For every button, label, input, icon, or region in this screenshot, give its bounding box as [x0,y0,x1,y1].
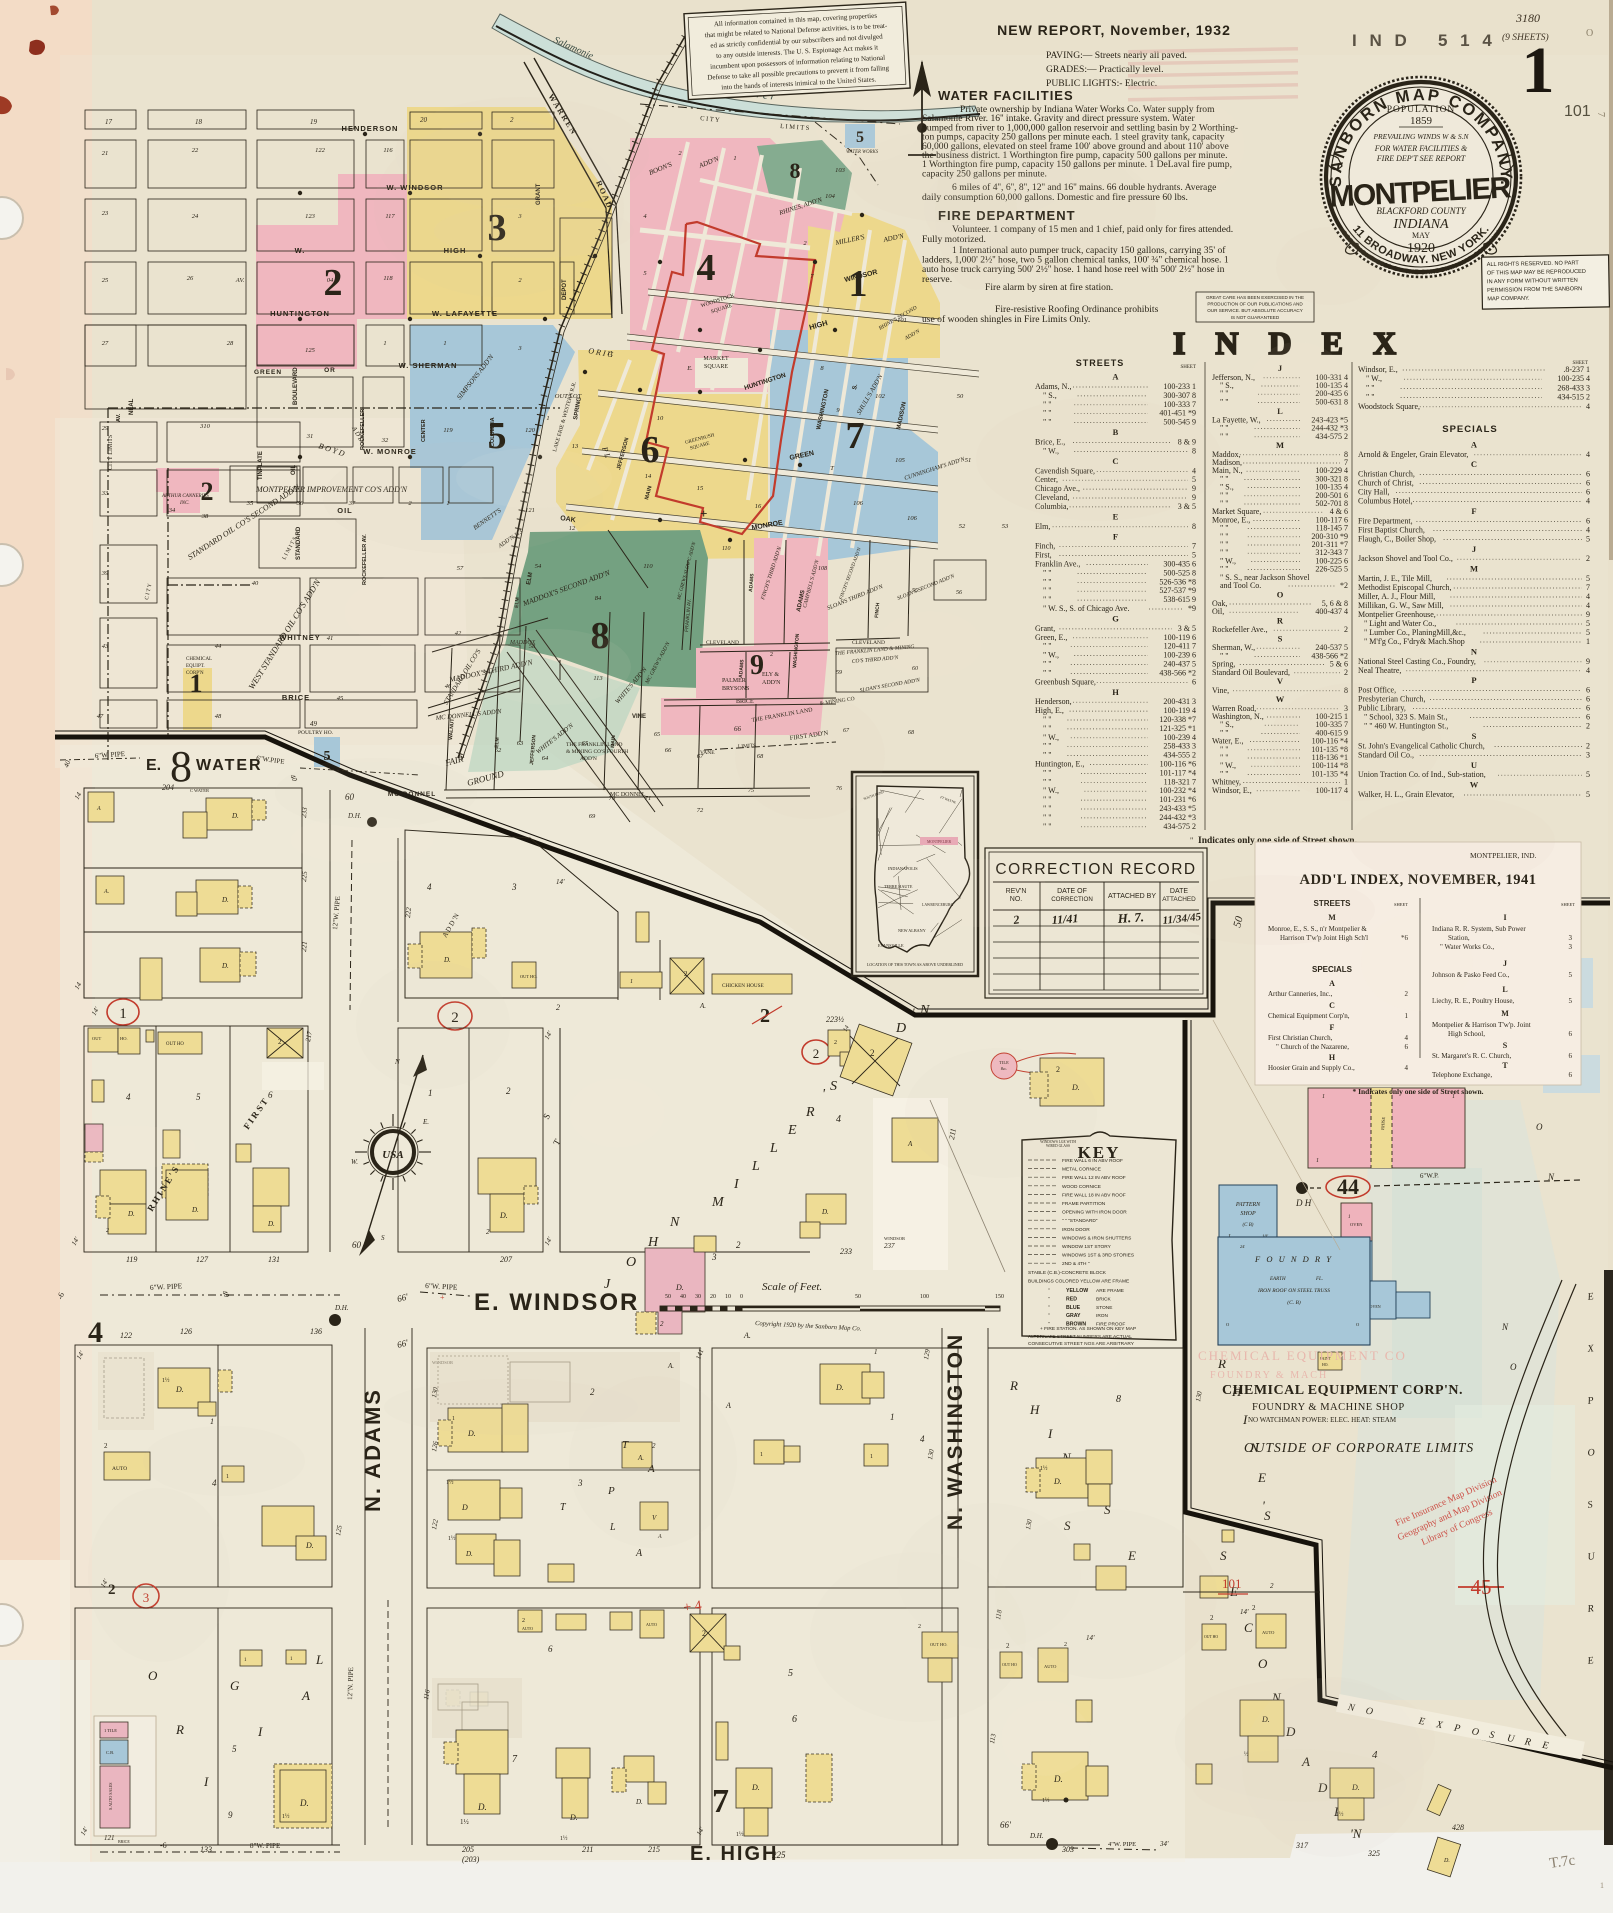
svg-text:2: 2 [201,477,214,506]
svg-text:1½: 1½ [460,1818,469,1826]
svg-text:120-338 *7: 120-338 *7 [1159,715,1196,724]
svg-text:" ": " " [1220,432,1229,441]
svg-text:1859: 1859 [1410,115,1433,127]
svg-text:E. HIGH: E. HIGH [690,1843,778,1865]
svg-text:57: 57 [457,565,464,572]
svg-text:AUTO: AUTO [646,1622,657,1627]
svg-text:1: 1 [849,263,868,305]
svg-text:2ND & 4TH ": 2ND & 4TH " [1062,1261,1090,1267]
svg-text:H: H [1029,1402,1040,1417]
svg-text:2: 2 [486,1228,490,1236]
svg-text:31: 31 [306,433,314,440]
svg-text:L: L [1502,985,1507,994]
svg-text:50: 50 [957,393,964,400]
svg-text:FOUNDRY & MACH: FOUNDRY & MACH [1210,1370,1328,1381]
svg-text:51: 51 [965,457,972,464]
svg-text:Huntington, E.,: Huntington, E., [1035,760,1084,769]
svg-text:118-321 7: 118-321 7 [1164,777,1196,786]
svg-text:First Christian Church,: First Christian Church, [1268,1034,1333,1042]
svg-text:1920: 1920 [1407,241,1435,256]
svg-text:ELM: ELM [494,737,501,748]
svg-text:ATTACHED BY: ATTACHED BY [1108,893,1156,900]
svg-text:" ": " " [1043,742,1052,751]
svg-text:" Lumber Co., PlaningMill,: " Lumber Co., PlaningMill,&c., [1364,628,1466,637]
svg-text:AV.: AV. [116,413,122,422]
svg-text:538-615 9: 538-615 9 [1163,595,1196,604]
svg-text:243-433 *5: 243-433 *5 [1159,804,1196,813]
svg-text:100: 100 [920,1294,929,1300]
svg-text:6"W.P.: 6"W.P. [1420,1171,1439,1180]
svg-text:5: 5 [1586,790,1590,799]
svg-text:OPENING WITH IRON DOOR: OPENING WITH IRON DOOR [1062,1210,1127,1216]
svg-text:G: G [1112,614,1119,624]
svg-text:GREAT CARE HAS BEEN EXERCISED: GREAT CARE HAS BEEN EXERCISED IN THE [1206,295,1304,300]
svg-text:101-117 *4: 101-117 *4 [1160,768,1196,777]
svg-text:" ": " " [1366,393,1375,402]
svg-text:2: 2 [870,1048,875,1058]
svg-text:" ": " " [1043,668,1052,677]
svg-text:258-433 3: 258-433 3 [1163,742,1196,751]
svg-text:1: 1 [1348,1215,1351,1220]
svg-text:St. Margaret's R. C. Church,: St. Margaret's R. C. Church, [1432,1052,1512,1060]
svg-text:120: 120 [525,427,536,434]
svg-text:Arnold & Engeler, Grain Elevat: Arnold & Engeler, Grain Elevator, [1358,450,1468,459]
svg-text:6: 6 [1586,686,1590,695]
svg-text:High, E.,: High, E., [1035,706,1064,715]
svg-text:OUT HO.: OUT HO. [520,974,537,979]
svg-text:1: 1 [1600,1881,1604,1890]
svg-text:500-525 8: 500-525 8 [1163,568,1196,577]
svg-text:ROCKEFELLER: ROCKEFELLER [360,409,366,450]
svg-text:NEW REPORT, November, 1932: NEW REPORT, November, 1932 [997,22,1231,38]
svg-text:CHEMICAL EQUIPMENT CORP'N.: CHEMICAL EQUIPMENT CORP'N. [1222,1383,1463,1398]
svg-text:Fire alarm by siren at fire st: Fire alarm by siren at fire station. [985,282,1113,293]
svg-text:OVEN: OVEN [1350,1222,1363,1227]
svg-text:35: 35 [246,500,254,507]
svg-text:11/41: 11/41 [1051,911,1079,927]
svg-text:44: 44 [215,643,222,650]
svg-text:" ": " " [1043,777,1052,786]
svg-text:" W.,: " W., [1043,651,1059,660]
svg-text:EVANSVILLE: EVANSVILLE [878,943,904,948]
svg-text:+ FIRE STATION. AS SHOWN ON K: + FIRE STATION. AS SHOWN ON KEY MAP [1040,1326,1136,1332]
svg-text:O: O [1277,589,1284,599]
svg-text:BUILDINGS COLORED YELLOW ARE F: BUILDINGS COLORED YELLOW ARE FRAME [1028,1278,1129,1284]
svg-text:Montpelier & Harrison T'w'p. J: Montpelier & Harrison T'w'p. Joint [1432,1021,1531,1029]
svg-text:F O U N D R Y: F O U N D R Y [1254,1254,1333,1264]
svg-text:IS NOT GUARANTEED: IS NOT GUARANTEED [1231,315,1280,320]
svg-text:LOCATION OF THIS TOWN AS ABOVE: LOCATION OF THIS TOWN AS ABOVE UNDERLINE… [867,962,963,967]
svg-text:1½: 1½ [560,1835,568,1842]
svg-text:HUNTINGTON: HUNTINGTON [270,309,330,318]
svg-text:6: 6 [792,1714,797,1725]
svg-text:Fire Department,: Fire Department, [1358,516,1413,525]
svg-text:High School,: High School, [1448,1030,1485,1038]
svg-text:6: 6 [1586,713,1590,722]
svg-text:3: 3 [1586,750,1590,759]
svg-text:527-537 *9: 527-537 *9 [1159,586,1196,595]
svg-text:D.: D. [267,1220,275,1228]
svg-text:* Indicates only one side of: * Indicates only one side of Street show… [1352,1087,1483,1096]
svg-text:" M'f'g Co., F'dry& Mach.S: " M'f'g Co., F'dry& Mach.Shop [1364,637,1465,646]
svg-text:32: 32 [381,437,389,444]
svg-text:S: S [1472,731,1477,741]
svg-text:I: I [203,1774,209,1789]
svg-text:5 1 4: 5 1 4 [1438,31,1496,50]
svg-text:14: 14 [645,473,652,480]
svg-text:Henderson,: Henderson, [1035,697,1072,706]
svg-text:D.: D. [221,962,229,970]
svg-text:123: 123 [305,213,316,220]
svg-text:YELLOW: YELLOW [1066,1288,1088,1294]
svg-text:FIRE WALL 6 IN ABV ROOF: FIRE WALL 6 IN ABV ROOF [1062,1158,1123,1164]
svg-text:Millikan, G. W., Saw Mill,: Millikan, G. W., Saw Mill, [1358,601,1444,610]
svg-text:OUT LOT: OUT LOT [555,393,582,400]
svg-text:W: W [1276,694,1285,704]
svg-text:D.: D. [231,812,239,820]
svg-text:D.: D. [191,1206,199,1214]
svg-text:4: 4 [920,1434,925,1444]
svg-text:" ": " " [1043,795,1052,804]
svg-text:National Steel Casting Co., Fo: National Steel Casting Co., Foundry, [1358,657,1476,666]
svg-text:122: 122 [315,147,326,154]
svg-text:" ": " " [1220,397,1229,406]
svg-text:2: 2 [736,1240,741,1250]
svg-text:H. 7.: H. 7. [1116,909,1144,926]
svg-text:2: 2 [1586,741,1590,750]
svg-text:1: 1 [890,1412,895,1422]
svg-text:1: 1 [870,1454,873,1460]
svg-text:+: + [440,1293,445,1302]
svg-text:40: 40 [680,1294,686,1300]
svg-text:101-231 *6: 101-231 *6 [1159,795,1196,804]
svg-text:50: 50 [665,1294,671,1300]
svg-text:7: 7 [712,1783,729,1820]
svg-text:WATER: WATER [196,757,263,774]
svg-text:1: 1 [428,1088,433,1098]
svg-text:E.: E. [686,365,693,372]
svg-text:T: T [830,465,834,472]
svg-text:D.: D. [477,1802,487,1812]
svg-text:R: R [805,1105,815,1120]
svg-text:24: 24 [192,213,199,220]
svg-text:D.: D. [299,1798,309,1808]
svg-text:HENDERSON: HENDERSON [342,124,399,133]
svg-text:6: 6 [548,1644,553,1654]
svg-text:110: 110 [643,563,653,570]
svg-text:E: E [787,1123,797,1138]
svg-text:7: 7 [1192,542,1196,551]
svg-text:POULTRY HO.: POULTRY HO. [298,730,334,736]
svg-text:" ": " " [1366,383,1375,392]
svg-text:1: 1 [733,155,736,162]
svg-text:04: 04 [327,277,334,284]
svg-text:1: 1 [760,1452,763,1458]
svg-text:SQUARE: SQUARE [704,364,728,370]
svg-text:2: 2 [106,1228,109,1234]
svg-text:J: J [1503,959,1507,968]
svg-text:4: 4 [1405,1034,1409,1042]
svg-text:FIRE WALL 18 IN ABV ROOF: FIRE WALL 18 IN ABV ROOF [1062,1192,1126,1198]
svg-text:.8-237 1: .8-237 1 [1563,365,1590,374]
svg-text:reserve.: reserve. [922,274,952,285]
svg-text:INDIANAPOLIS: INDIANAPOLIS [888,866,918,871]
svg-text:AUTO: AUTO [1262,1630,1275,1635]
svg-text:1: 1 [1405,1012,1409,1020]
svg-text:5: 5 [1569,971,1573,979]
svg-text:S: S [381,1234,385,1242]
svg-text:POPULATION: POPULATION [1387,105,1456,115]
svg-text:Montpelier Greenhouse,: Montpelier Greenhouse, [1358,610,1436,619]
svg-text:49: 49 [310,720,318,728]
svg-text:131: 131 [268,1255,280,1264]
svg-text:3: 3 [1569,934,1573,942]
svg-text:300-307 8: 300-307 8 [1163,391,1196,400]
svg-text:47: 47 [97,713,104,720]
svg-text:WINDOWS & IRON SHUTTERS: WINDOWS & IRON SHUTTERS [1062,1235,1131,1241]
svg-text:': ' [912,1005,915,1019]
svg-text:1: 1 [1586,637,1590,646]
svg-text:A.: A. [667,1362,674,1370]
svg-text:244-432 *3: 244-432 *3 [1159,813,1196,822]
svg-text:I: I [1503,913,1506,922]
svg-text:MARKET: MARKET [703,356,729,362]
svg-text:Vine,: Vine, [1212,686,1229,695]
svg-text:2: 2 [278,1038,282,1046]
svg-text:AV.: AV. [235,277,245,284]
svg-text:" " "STANDARD": " " "STANDARD" [1062,1218,1098,1224]
svg-text:5: 5 [1586,534,1590,543]
svg-text:" ": " " [1043,822,1052,831]
svg-text:126: 126 [180,1327,192,1336]
svg-text:122: 122 [120,1331,132,1340]
svg-text:56: 56 [956,590,962,596]
svg-text:204: 204 [162,783,174,792]
svg-text:O: O [1587,1447,1596,1459]
svg-text:5: 5 [1586,770,1590,779]
svg-text:Windsor, E.,: Windsor, E., [1358,365,1398,374]
svg-text:26: 26 [187,275,194,282]
svg-text:5: 5 [232,1744,237,1754]
svg-text:HO.: HO. [120,1036,128,1041]
svg-text:1: 1 [1522,34,1555,107]
svg-text:" ": " " [1043,642,1052,651]
svg-text:211: 211 [582,1845,593,1854]
svg-text:127: 127 [196,1255,209,1264]
svg-text:BRICE: BRICE [282,693,310,702]
svg-text:14': 14' [1240,1608,1249,1616]
svg-text:VINE: VINE [632,714,646,720]
svg-text:19: 19 [310,118,318,126]
svg-text:O: O [1258,1656,1268,1671]
svg-text:Miller, A. J., Flour Mill,: Miller, A. J., Flour Mill, [1358,592,1435,601]
svg-text:23: 23 [102,210,109,217]
svg-text:H: H [1329,1053,1336,1062]
svg-text:D.: D. [499,1211,508,1220]
svg-text:8: 8 [1116,1394,1121,1405]
svg-text:52: 52 [959,523,966,530]
svg-text:9: 9 [1586,610,1590,619]
svg-text:EARTH: EARTH [1269,1277,1286,1282]
svg-text:18: 18 [195,118,203,126]
svg-text:1: 1 [119,1006,127,1022]
svg-text:237: 237 [884,1242,895,1250]
svg-text:A.: A. [743,1331,751,1340]
svg-text:Oil,: Oil, [1212,607,1224,616]
svg-text:325: 325 [1367,1849,1380,1858]
svg-text:12"N. PIPE: 12"N. PIPE [346,1667,355,1700]
svg-text:": " [1048,1289,1050,1294]
svg-text:100-119 4: 100-119 4 [1164,706,1196,715]
svg-text:EQUIPT.: EQUIPT. [186,664,205,669]
svg-text:N: N [1471,646,1478,656]
svg-text:Church of Christ,: Church of Christ, [1358,479,1414,488]
svg-text:PRODUCTION OF OUR PUBLICATIONS: PRODUCTION OF OUR PUBLICATIONS AND [1207,302,1303,307]
svg-text:434-575 2: 434-575 2 [1315,432,1348,441]
svg-text:6"W. PIPE: 6"W. PIPE [150,1281,183,1292]
svg-text:10: 10 [725,1294,731,1300]
svg-text:84: 84 [595,595,602,602]
svg-text:6: 6 [1586,479,1590,488]
svg-text:A: A [1112,372,1119,382]
svg-text:INDIANA: INDIANA [1392,217,1449,232]
svg-text:I: I [1047,1426,1053,1441]
svg-text:A.: A. [103,889,109,895]
svg-text:100-239 6: 100-239 6 [1163,651,1196,660]
svg-text:119: 119 [126,1255,137,1264]
svg-text:434-515 2: 434-515 2 [1557,393,1590,402]
svg-text:72: 72 [697,807,704,814]
svg-text:W. SHERMAN: W. SHERMAN [399,361,458,370]
svg-text:5: 5 [196,1092,201,1102]
svg-text:Jackson Shovel and Tool Co.,: Jackson Shovel and Tool Co., [1358,554,1453,563]
svg-text:" W. S., S. of Chicago Ave.: " W. S., S. of Chicago Ave. [1043,604,1129,613]
svg-text:6: 6 [1569,1071,1573,1079]
svg-text:OIL: OIL [291,465,297,475]
svg-text:105: 105 [895,457,906,464]
svg-text:D.: D. [635,1798,643,1806]
svg-text:C: C [1244,1620,1253,1635]
svg-text:ADD'N: ADD'N [762,680,781,686]
svg-text:434-555 2: 434-555 2 [1163,751,1196,760]
svg-text:" S.,: " S., [1043,391,1057,400]
svg-text:4: 4 [1405,1064,1409,1072]
svg-text:2: 2 [660,1320,664,1328]
svg-text:PREVAILING WINDS W & S.N: PREVAILING WINDS W & S.N [1372,132,1469,141]
svg-text:6: 6 [268,1090,273,1100]
svg-text:303: 303 [1061,1845,1074,1854]
svg-text:1: 1 [1322,1094,1325,1100]
svg-text:D.: D. [221,896,229,904]
svg-text:BRICE: BRICE [736,699,754,705]
svg-text:AUTO: AUTO [522,1626,533,1631]
svg-text:L: L [769,1141,778,1156]
svg-text:M: M [1501,1009,1509,1018]
svg-text:200-431 3: 200-431 3 [1163,697,1196,706]
svg-text:2: 2 [522,1618,525,1624]
svg-text:101: 101 [897,317,907,324]
svg-text:2: 2 [556,1003,560,1012]
svg-text:A: A [725,1401,731,1410]
svg-text:2: 2 [1252,1604,1256,1612]
svg-text:NEAL: NEAL [129,398,135,415]
svg-text:M: M [1276,440,1284,450]
svg-text:Scale of Feet.: Scale of Feet. [762,1281,822,1293]
svg-text:2: 2 [702,1629,706,1638]
svg-text:2: 2 [1586,722,1590,731]
svg-text:OUT HO: OUT HO [166,1042,184,1047]
svg-text:D.: D. [465,1550,473,1558]
svg-text:9: 9 [1586,657,1590,666]
svg-text:Woodstock Square,: Woodstock Square, [1358,402,1420,411]
svg-text:55: 55 [912,588,918,594]
svg-text:1: 1 [210,1417,214,1426]
svg-text:SHEET: SHEET [1180,365,1196,370]
svg-text:4"W. PIPE: 4"W. PIPE [1108,1841,1136,1848]
svg-text:IRON ROOF ON STEEL TRUSS: IRON ROOF ON STEEL TRUSS [1257,1288,1330,1294]
svg-text:Monroe, E.,: Monroe, E., [1212,515,1250,524]
svg-text:S: S [1503,1041,1508,1050]
svg-text:106: 106 [907,515,918,522]
svg-text:OR: OR [324,367,336,374]
svg-text:223½: 223½ [826,1015,844,1024]
svg-text:4: 4 [126,1092,131,1102]
svg-text:2: 2 [506,1086,511,1096]
svg-text:D.: D. [1443,1858,1450,1864]
svg-text:CHEMICAL: CHEMICAL [186,657,212,662]
svg-text:438-566 *2: 438-566 *2 [1159,668,1196,677]
svg-text:66: 66 [734,725,742,733]
svg-text:" Light and Water Co.,: " Light and Water Co., [1364,619,1436,628]
svg-text:NEW ALBANY: NEW ALBANY [898,928,926,933]
svg-text:+ 4: + 4 [682,1599,702,1616]
svg-text:2: 2 [104,1442,108,1450]
svg-text:100-116 *6: 100-116 *6 [1160,760,1196,769]
svg-text:WOOD CORNICE: WOOD CORNICE [1062,1184,1101,1190]
svg-text:100-233 1: 100-233 1 [1163,382,1196,391]
svg-text:8: 8 [790,158,801,183]
svg-text:526-536 *8: 526-536 *8 [1159,577,1196,586]
svg-text:SPECIALS: SPECIALS [1312,965,1353,974]
svg-text:W.: W. [351,1158,358,1166]
svg-text:6: 6 [1586,516,1590,525]
svg-text:STONE: STONE [1096,1305,1112,1311]
svg-text:STREETS: STREETS [1076,358,1125,368]
svg-text:GRAY: GRAY [1066,1313,1081,1319]
svg-text:" ": " " [1043,586,1052,595]
svg-text:27: 27 [102,340,109,347]
svg-text:SHEET: SHEET [1394,902,1408,907]
svg-text:11: 11 [607,350,613,357]
svg-text:OUTSIDE OF CORPORATE LIMITS: OUTSIDE OF CORPORATE LIMITS [1244,1440,1474,1455]
svg-text:HO.: HO. [1322,1363,1328,1367]
svg-text:225: 225 [300,871,309,883]
svg-text:1½: 1½ [446,1479,454,1486]
svg-text:108: 108 [818,566,827,572]
svg-text:36: 36 [296,500,304,507]
svg-text:(C B): (C B) [1243,1223,1254,1228]
svg-text:4: 4 [1586,592,1590,601]
svg-text:WINDOW 1ST STORY: WINDOW 1ST STORY [1062,1244,1112,1250]
svg-text:7: 7 [1595,112,1606,117]
svg-text:118: 118 [383,275,393,282]
svg-text:100-239 4: 100-239 4 [1163,733,1196,742]
svg-text:41: 41 [327,635,334,642]
svg-text:1½: 1½ [282,1813,290,1820]
svg-text:0: 0 [740,1294,743,1300]
svg-text:121: 121 [104,1834,115,1842]
svg-text:4: 4 [1586,601,1590,610]
